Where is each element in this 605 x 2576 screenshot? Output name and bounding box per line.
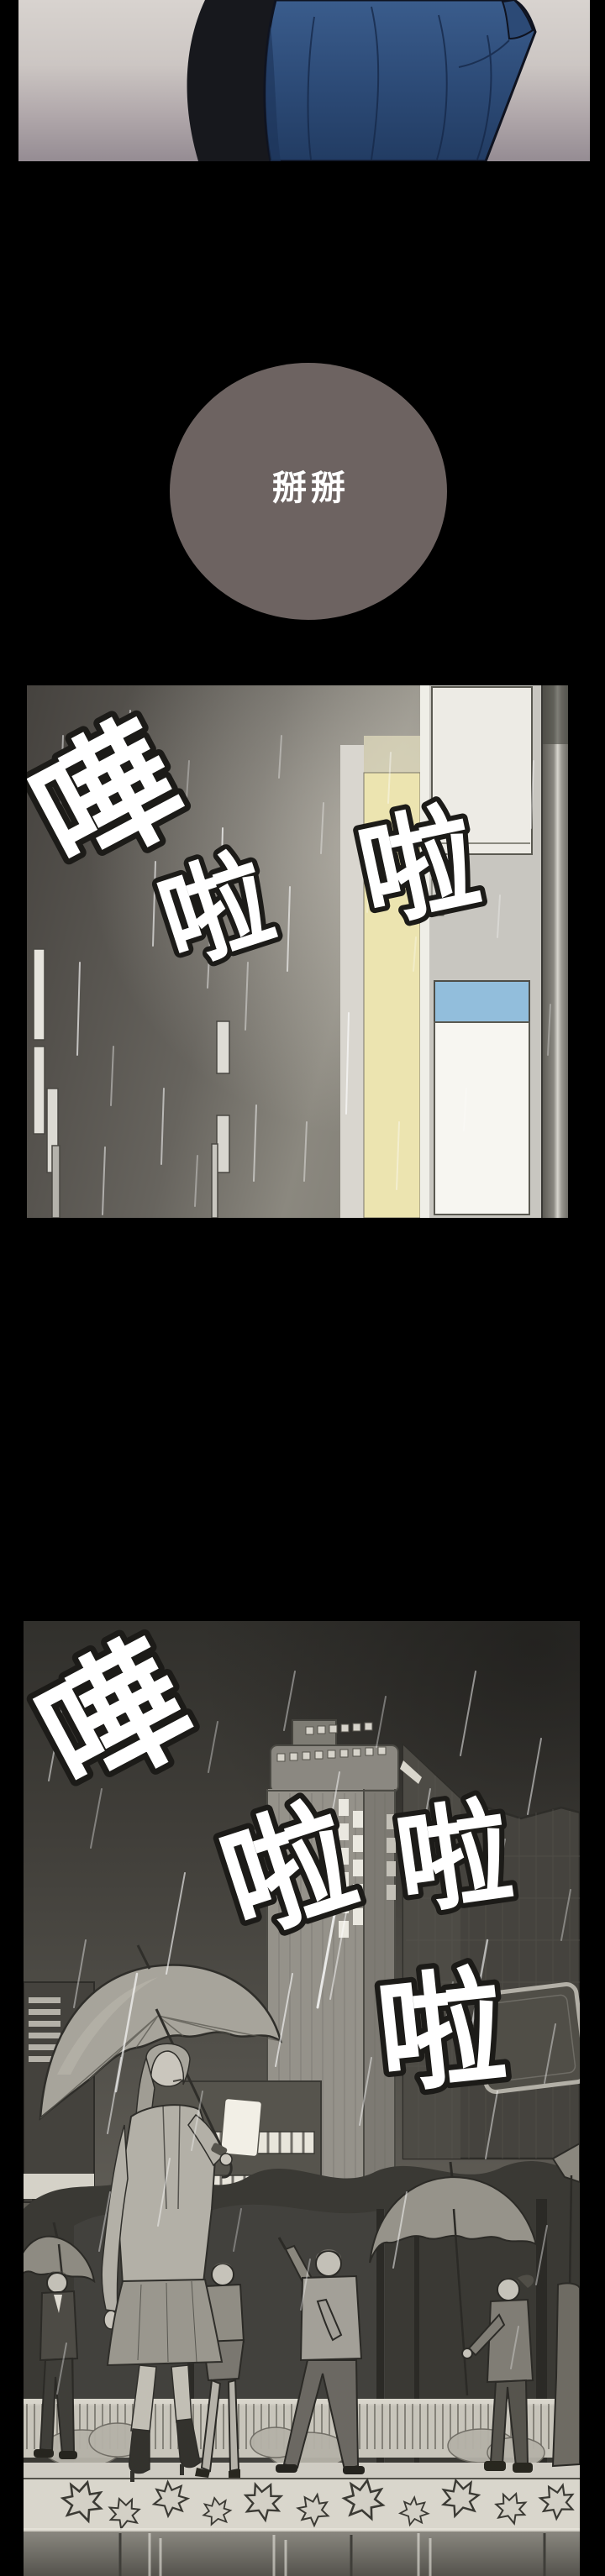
pavement (24, 2530, 580, 2576)
panel-3: 嘩 啦 啦 啦 (24, 1621, 580, 2576)
panel-3-art: 嘩 啦 啦 啦 (24, 1621, 580, 2576)
skirt (108, 2280, 222, 2365)
speech-bubble-text: 掰掰 (272, 468, 350, 508)
webtoon-page: 掰掰 (0, 0, 605, 2576)
yellow-building-glow (364, 736, 420, 778)
sfx-la-3: 啦 (371, 1954, 511, 2112)
lit-sign (220, 2098, 262, 2157)
blue-window (434, 981, 529, 1022)
sfx-la-2: 啦 (388, 1785, 519, 1931)
panel-2: 嘩 啦 啦 (27, 685, 568, 1218)
panel-1-art (18, 0, 590, 161)
panel-1 (18, 0, 590, 161)
inner-garment (187, 0, 276, 161)
hoodie-figure (265, 0, 535, 161)
panel-2-art: 嘩 啦 啦 (27, 685, 568, 1218)
right-column (542, 685, 568, 1218)
white-frame-strip (420, 685, 429, 1218)
white-window-lower (434, 1022, 529, 1215)
speech-bubble-section: 掰掰 (0, 336, 605, 638)
